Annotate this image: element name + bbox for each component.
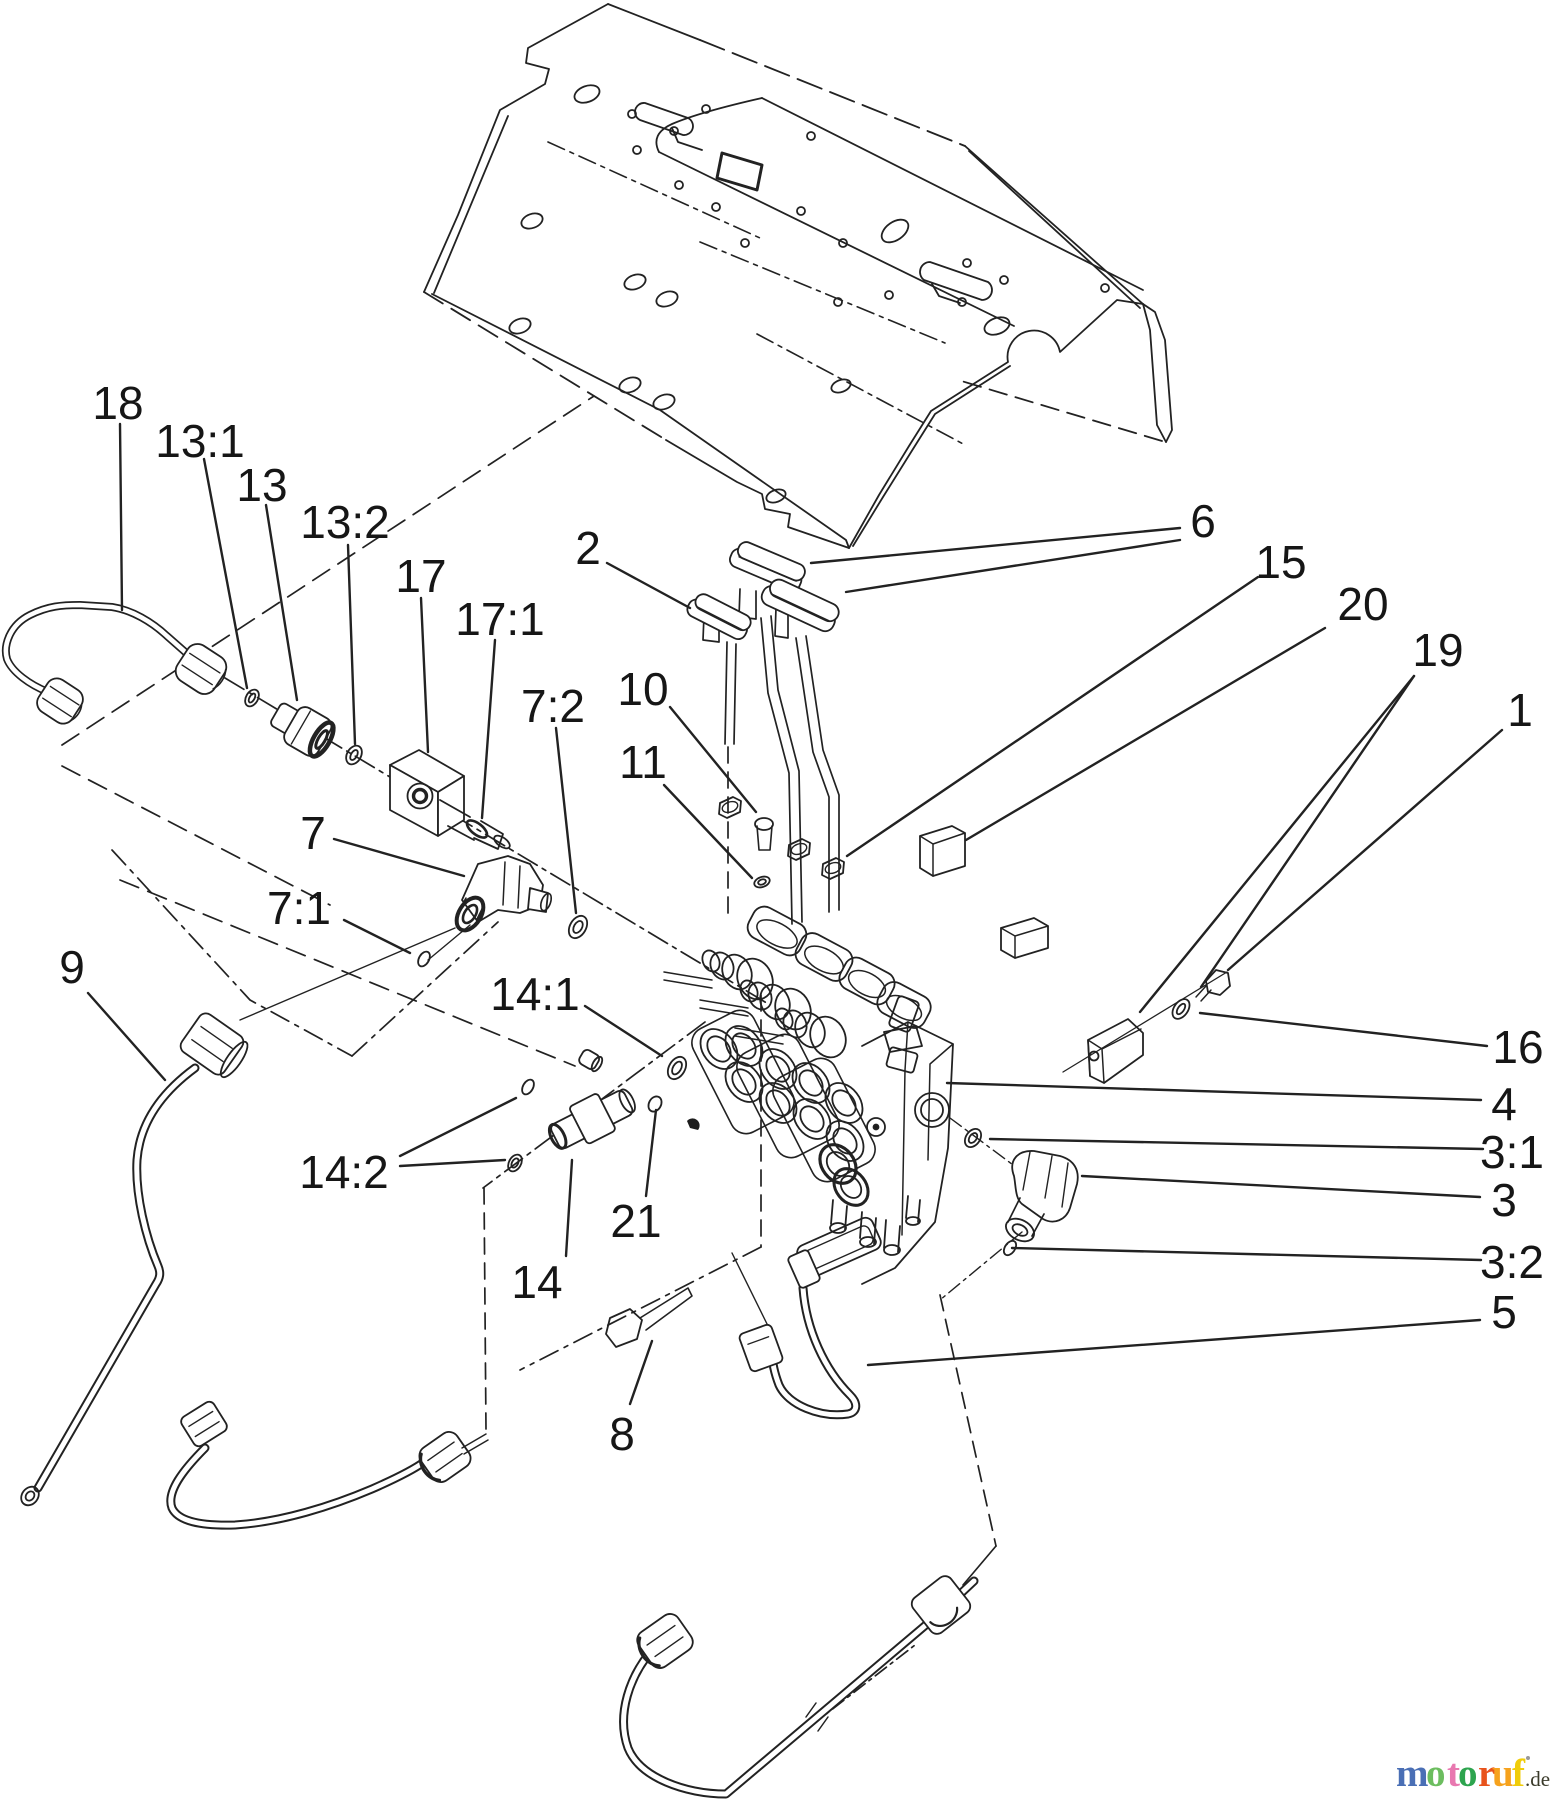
svg-text:17: 17: [395, 550, 446, 602]
svg-text:3: 3: [1491, 1174, 1517, 1226]
svg-text:20: 20: [1337, 578, 1388, 630]
svg-text:7:1: 7:1: [267, 882, 331, 934]
svg-text:11: 11: [619, 736, 667, 788]
svg-text:21: 21: [610, 1195, 661, 1247]
svg-text:7: 7: [300, 807, 326, 859]
svg-text:5: 5: [1491, 1286, 1517, 1338]
svg-text:f: f: [1512, 1752, 1526, 1795]
svg-text:14:1: 14:1: [490, 968, 580, 1020]
svg-text:7:2: 7:2: [521, 680, 585, 732]
svg-text:10: 10: [617, 663, 668, 715]
svg-text:3:1: 3:1: [1480, 1126, 1544, 1178]
svg-text:13:2: 13:2: [300, 496, 390, 548]
svg-text:8: 8: [609, 1408, 635, 1460]
svg-text:14: 14: [511, 1256, 562, 1308]
svg-text:19: 19: [1412, 624, 1463, 676]
svg-text:o: o: [1426, 1752, 1446, 1795]
svg-text:2: 2: [575, 522, 601, 574]
svg-text:13: 13: [236, 459, 287, 511]
svg-text:m: m: [1396, 1752, 1429, 1795]
svg-text:13:1: 13:1: [155, 415, 245, 467]
svg-text:1: 1: [1507, 684, 1533, 736]
svg-text:15: 15: [1255, 536, 1306, 588]
svg-text:3:2: 3:2: [1480, 1236, 1544, 1288]
svg-text:17:1: 17:1: [455, 593, 545, 645]
svg-text:6: 6: [1190, 495, 1216, 547]
svg-text:18: 18: [92, 377, 143, 429]
svg-text:u: u: [1492, 1752, 1514, 1795]
svg-text:16: 16: [1492, 1021, 1543, 1073]
svg-text:o: o: [1458, 1752, 1478, 1795]
svg-text:.de: .de: [1525, 1767, 1550, 1791]
svg-text:14:2: 14:2: [299, 1146, 389, 1198]
svg-text:9: 9: [59, 941, 85, 993]
svg-text:4: 4: [1491, 1078, 1517, 1130]
